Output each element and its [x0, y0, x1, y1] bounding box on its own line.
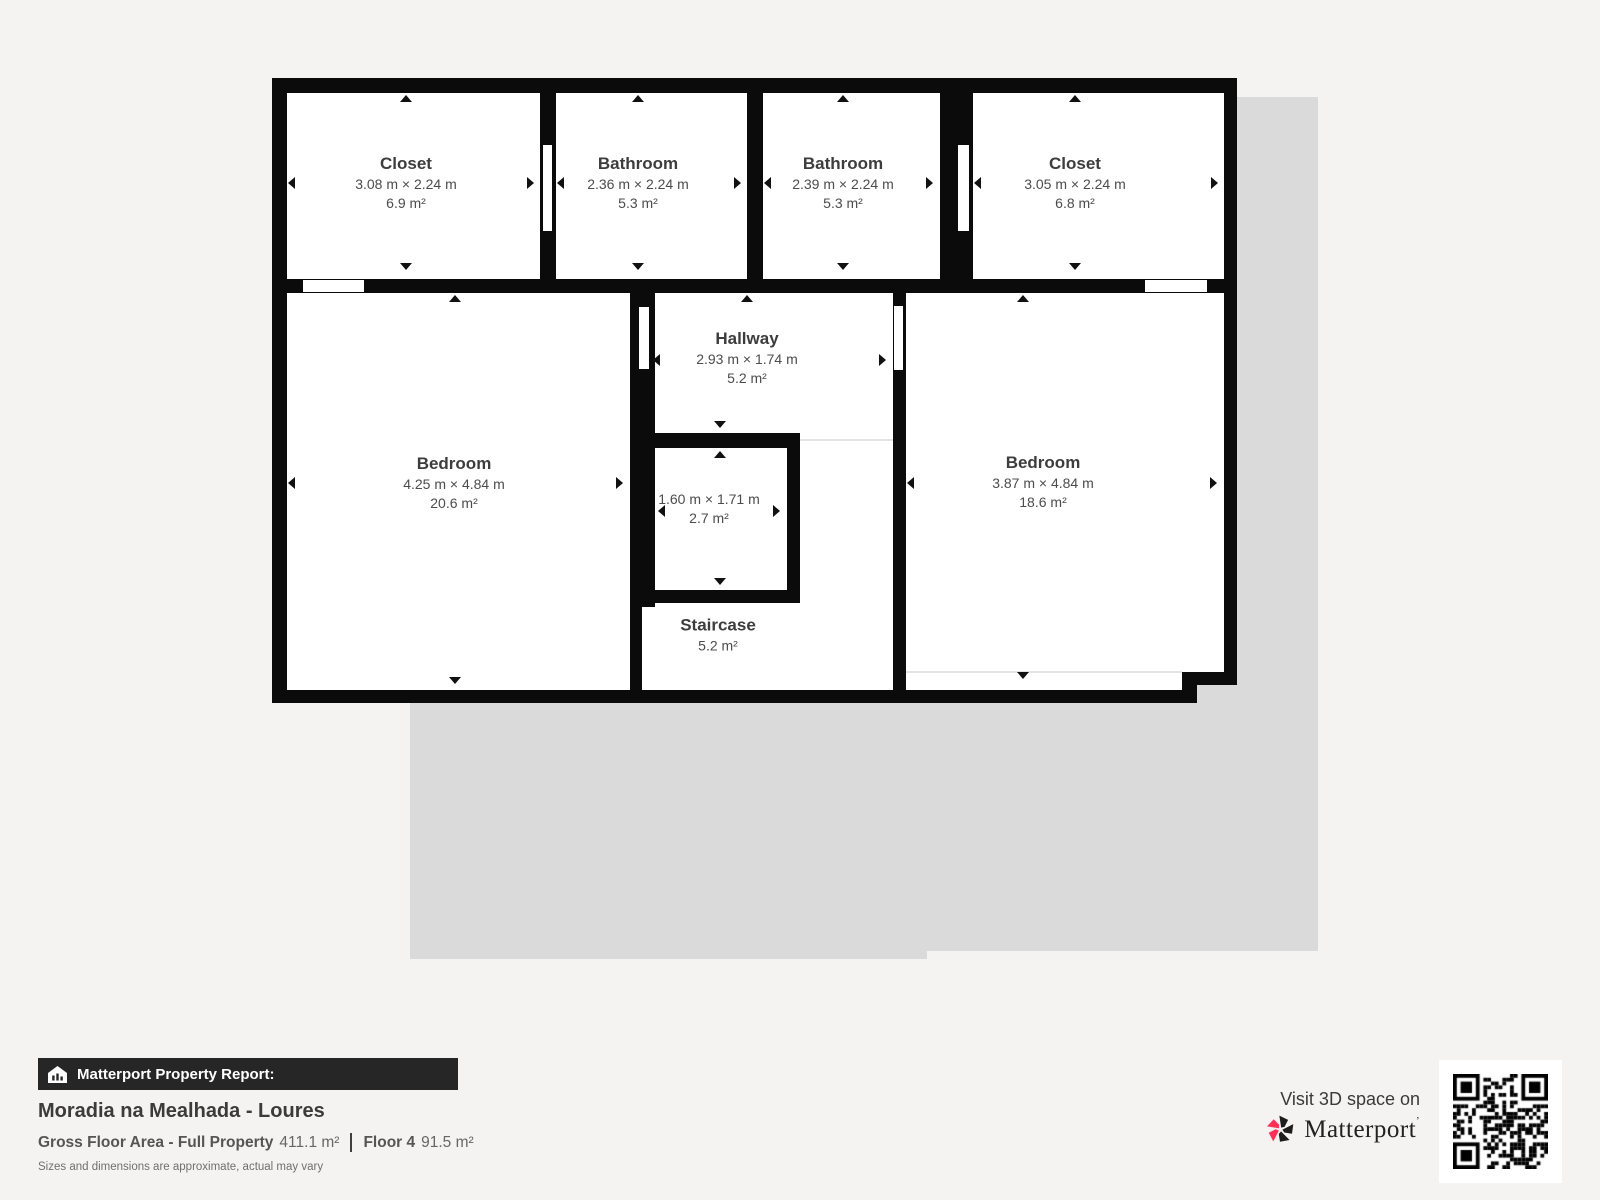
- room-dimensions: 2.39 m × 2.24 m: [792, 175, 894, 194]
- floorplan-notch: [1197, 685, 1237, 703]
- dimension-arrow: [734, 177, 741, 189]
- room-name: Closet: [1024, 153, 1126, 175]
- dimension-arrow: [907, 477, 914, 489]
- report-header-label: Matterport Property Report:: [77, 1066, 275, 1083]
- dimension-arrow: [288, 177, 295, 189]
- room-dimensions: 4.25 m × 4.84 m: [403, 475, 505, 494]
- qr-code: [1439, 1060, 1562, 1183]
- room-dimensions: 2.93 m × 1.74 m: [696, 350, 798, 369]
- disclaimer-text: Sizes and dimensions are approximate, ac…: [38, 1161, 323, 1173]
- dimension-arrow: [837, 263, 849, 270]
- dimension-arrow: [1210, 477, 1217, 489]
- wall-right: [1224, 78, 1237, 685]
- dimension-arrow: [557, 177, 564, 189]
- room-dimensions: 3.87 m × 4.84 m: [992, 474, 1094, 493]
- matterport-pinwheel-icon: [1265, 1114, 1296, 1145]
- room-name: Staircase: [680, 615, 756, 637]
- dimension-arrow: [714, 451, 726, 458]
- dimension-arrow: [879, 354, 886, 366]
- room-name: Bedroom: [403, 453, 505, 475]
- gross-floor-area-label: Gross Floor Area - Full Property: [38, 1134, 273, 1152]
- report-header-bar: Matterport Property Report:: [38, 1058, 458, 1090]
- property-report-page: Closet 3.08 m × 2.24 m 6.9 m² Bathroom 2…: [0, 0, 1600, 1200]
- room-area: 5.3 m²: [587, 194, 689, 213]
- qr-code-pattern: [1453, 1074, 1548, 1169]
- house-report-icon: [48, 1066, 67, 1083]
- room-dimensions: 2.36 m × 2.24 m: [587, 175, 689, 194]
- dimension-arrow: [1069, 263, 1081, 270]
- dimension-arrow: [527, 177, 534, 189]
- wall-divider: [272, 279, 1237, 293]
- room-name: Closet: [355, 153, 457, 175]
- dimension-arrow: [1017, 295, 1029, 302]
- room-area: 6.9 m²: [355, 194, 457, 213]
- room-dimensions: 1.60 m × 1.71 m: [658, 490, 760, 509]
- dimension-arrow: [714, 578, 726, 585]
- visit-3d-cta: Visit 3D space on Matterport’: [1265, 1088, 1420, 1145]
- opening-staircase: [642, 607, 655, 690]
- room-label-bedroom-left: Bedroom 4.25 m × 4.84 m 20.6 m²: [403, 453, 505, 513]
- floor-area-value: 91.5 m²: [421, 1134, 474, 1152]
- room-label-bathroom-left: Bathroom 2.36 m × 2.24 m 5.3 m²: [587, 153, 689, 213]
- door-closet-bathroom: [543, 145, 552, 231]
- dimension-arrow: [1211, 177, 1218, 189]
- room-area: 5.2 m²: [680, 637, 756, 656]
- dimension-arrow: [1017, 672, 1029, 679]
- dimension-arrow: [926, 177, 933, 189]
- matterport-wordmark: Matterport’: [1304, 1116, 1420, 1144]
- room-area: 5.2 m²: [696, 369, 798, 388]
- trademark-mark: ’: [1416, 1116, 1420, 1127]
- dimension-arrow: [400, 95, 412, 102]
- zone-line-bedroom: [906, 671, 1182, 673]
- room-area: 6.8 m²: [1024, 194, 1126, 213]
- room-label-staircase: Staircase 5.2 m²: [680, 615, 756, 656]
- dimension-arrow: [616, 477, 623, 489]
- dimension-arrow: [773, 505, 780, 517]
- dimension-arrow: [764, 177, 771, 189]
- dimension-arrow: [632, 263, 644, 270]
- dimension-arrow: [449, 677, 461, 684]
- wall-top: [272, 78, 1237, 93]
- visit-3d-text: Visit 3D space on: [1265, 1088, 1420, 1110]
- dimension-arrow: [974, 177, 981, 189]
- door-closet-right: [1145, 280, 1207, 292]
- door-hallway-left: [639, 307, 649, 369]
- matterport-logo: Matterport’: [1265, 1114, 1420, 1145]
- wall-step-vertical: [1182, 672, 1197, 703]
- room-label-closet-left: Closet 3.08 m × 2.24 m 6.9 m²: [355, 153, 457, 213]
- zone-line-hallway: [800, 439, 893, 441]
- dimension-arrow: [1069, 95, 1081, 102]
- dimension-arrow: [653, 354, 660, 366]
- door-closet-left: [303, 280, 364, 292]
- room-name: Bathroom: [587, 153, 689, 175]
- dimension-arrow: [400, 263, 412, 270]
- floor-label: Floor 4: [363, 1134, 415, 1152]
- room-area: 5.3 m²: [792, 194, 894, 213]
- room-area: 2.7 m²: [658, 509, 760, 528]
- door-bathroom-closet: [958, 145, 969, 231]
- room-label-bedroom-right: Bedroom 3.87 m × 4.84 m 18.6 m²: [992, 452, 1094, 512]
- room-area: 18.6 m²: [992, 493, 1094, 512]
- room-label-closet-right: Closet 3.05 m × 2.24 m 6.8 m²: [1024, 153, 1126, 213]
- room-name: Bedroom: [992, 452, 1094, 474]
- dimension-arrow: [288, 477, 295, 489]
- wall-left: [272, 78, 287, 703]
- room-dimensions: 3.08 m × 2.24 m: [355, 175, 457, 194]
- dimension-arrow: [837, 95, 849, 102]
- stats-divider: [350, 1133, 352, 1152]
- room-name: Hallway: [696, 328, 798, 350]
- dimension-arrow: [449, 295, 461, 302]
- wall-bottom: [272, 690, 1197, 703]
- report-stats: Gross Floor Area - Full Property 411.1 m…: [38, 1133, 474, 1152]
- room-name: Bathroom: [792, 153, 894, 175]
- room-label-small-room: 1.60 m × 1.71 m 2.7 m²: [658, 490, 760, 528]
- room-area: 20.6 m²: [403, 494, 505, 513]
- wall-bathroom-bathroom: [747, 93, 763, 279]
- gross-floor-area-value: 411.1 m²: [279, 1134, 339, 1152]
- room-dimensions: 3.05 m × 2.24 m: [1024, 175, 1126, 194]
- room-label-bathroom-right: Bathroom 2.39 m × 2.24 m 5.3 m²: [792, 153, 894, 213]
- door-hallway-right: [894, 306, 903, 370]
- dimension-arrow: [741, 295, 753, 302]
- room-label-hallway: Hallway 2.93 m × 1.74 m 5.2 m²: [696, 328, 798, 388]
- property-title: Moradia na Mealhada - Loures: [38, 1100, 325, 1123]
- dimension-arrow: [632, 95, 644, 102]
- dimension-arrow: [714, 421, 726, 428]
